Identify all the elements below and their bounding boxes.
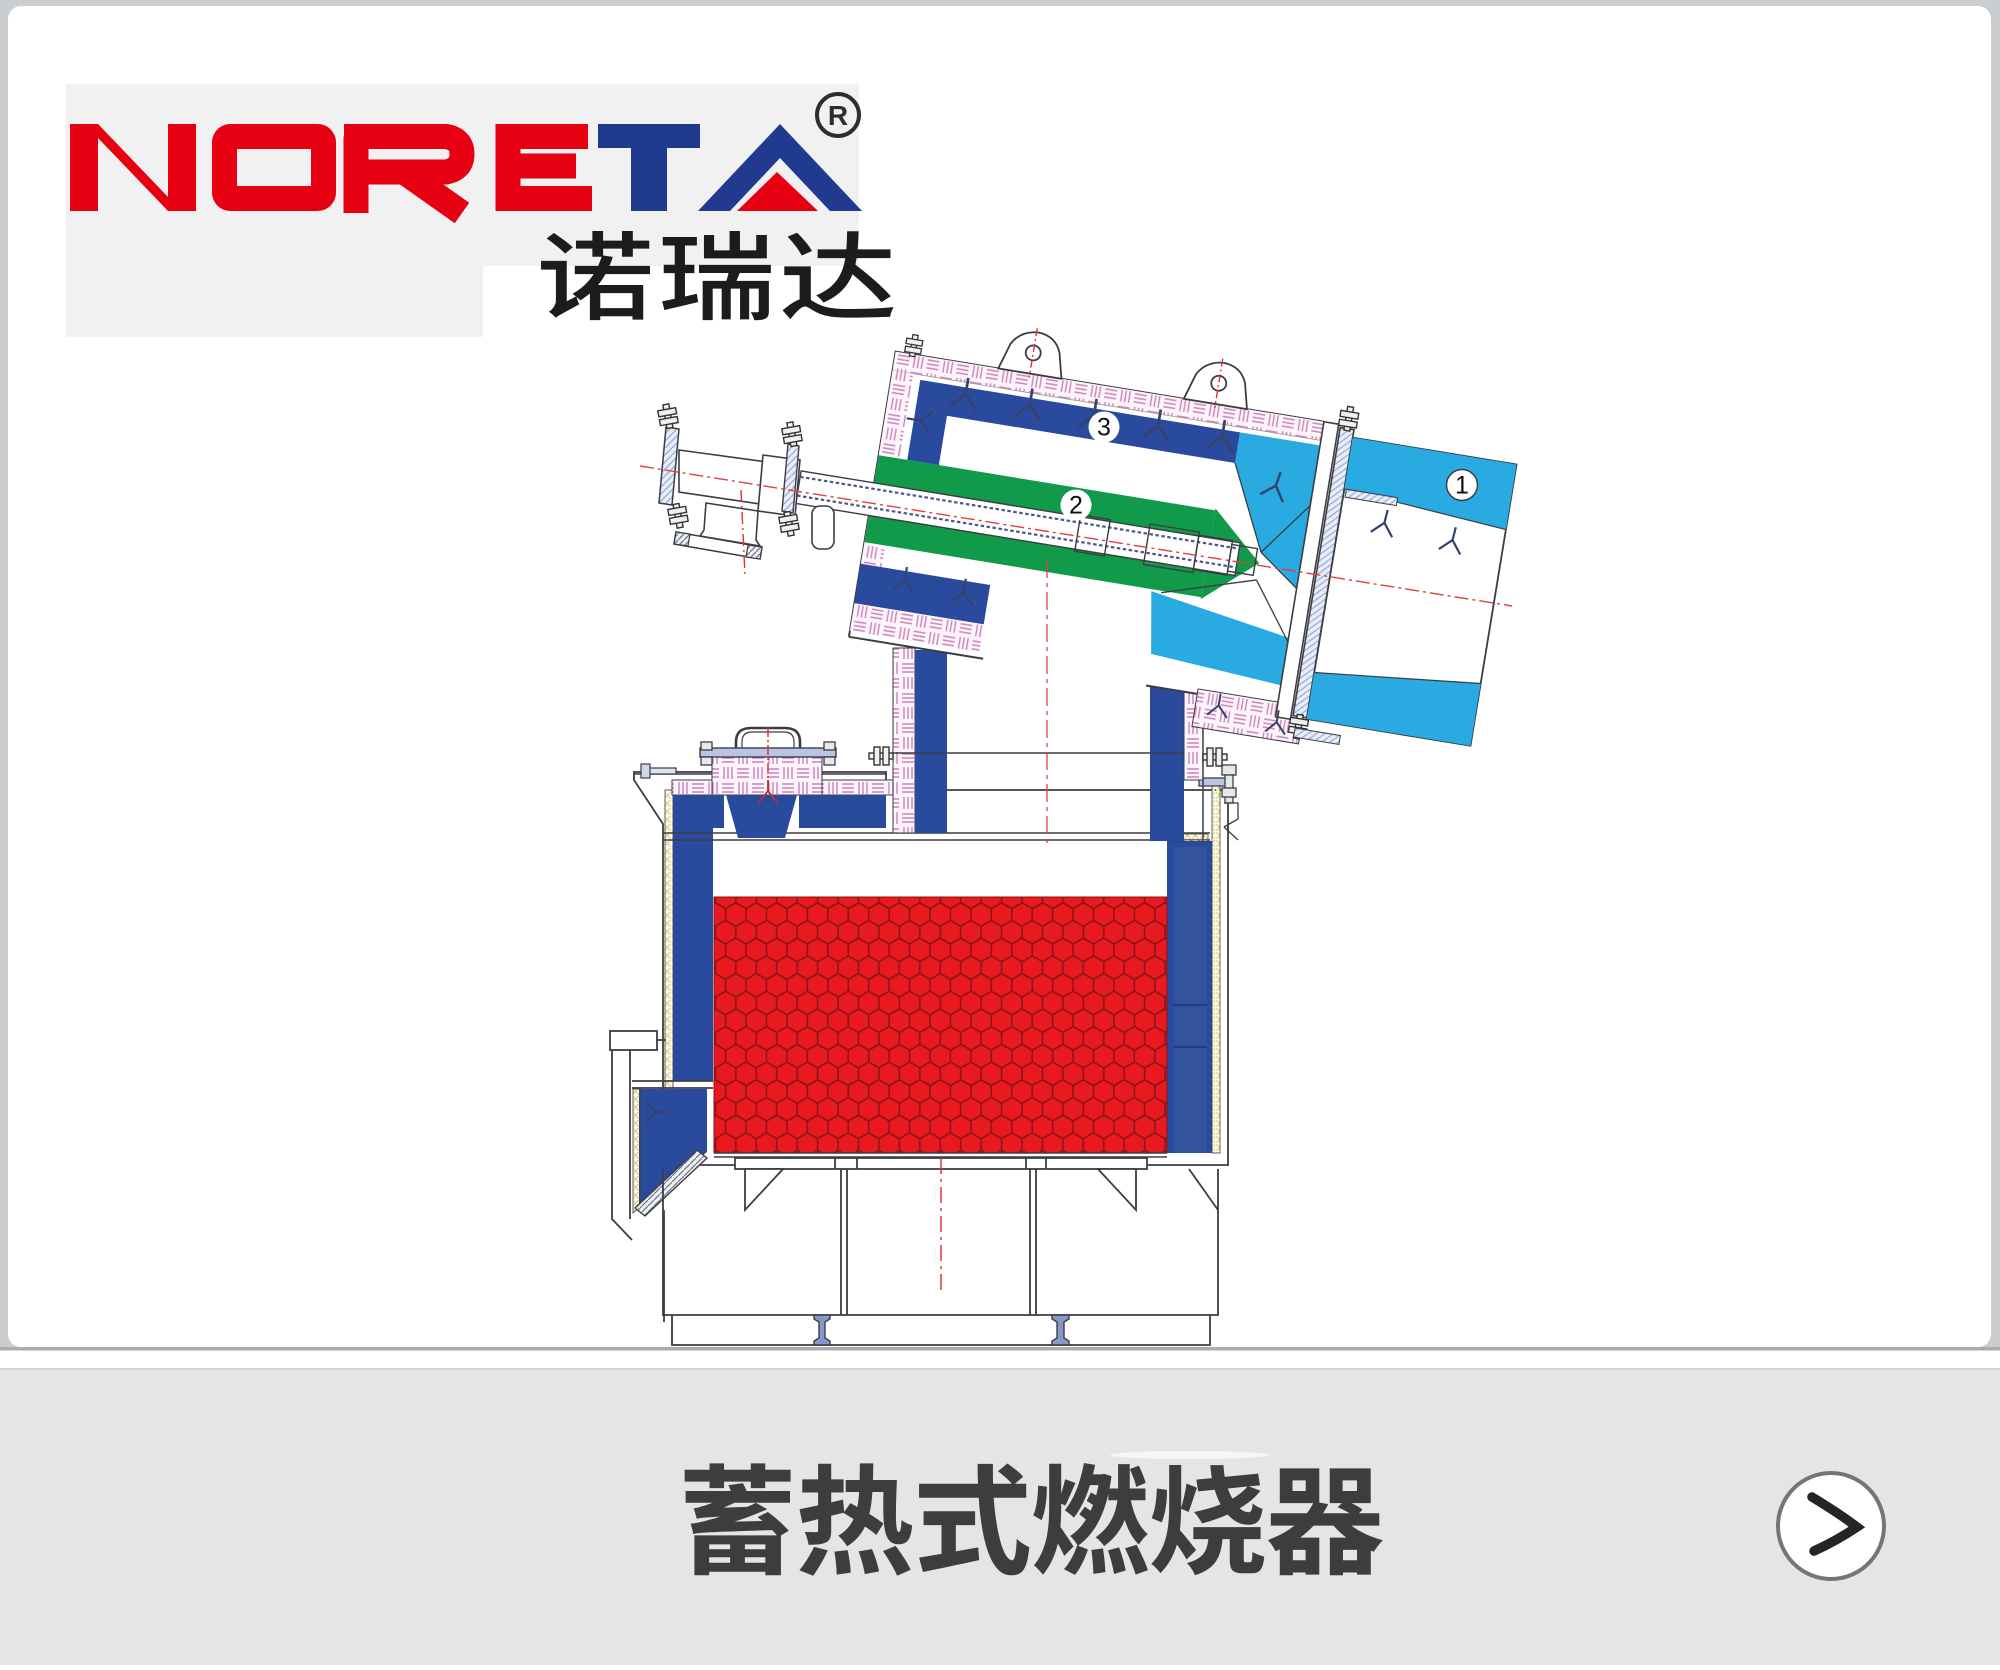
svg-text:R: R: [828, 100, 848, 131]
svg-text:3: 3: [1097, 414, 1111, 442]
svg-text:2: 2: [1069, 492, 1083, 520]
svg-text:1: 1: [1455, 472, 1469, 500]
